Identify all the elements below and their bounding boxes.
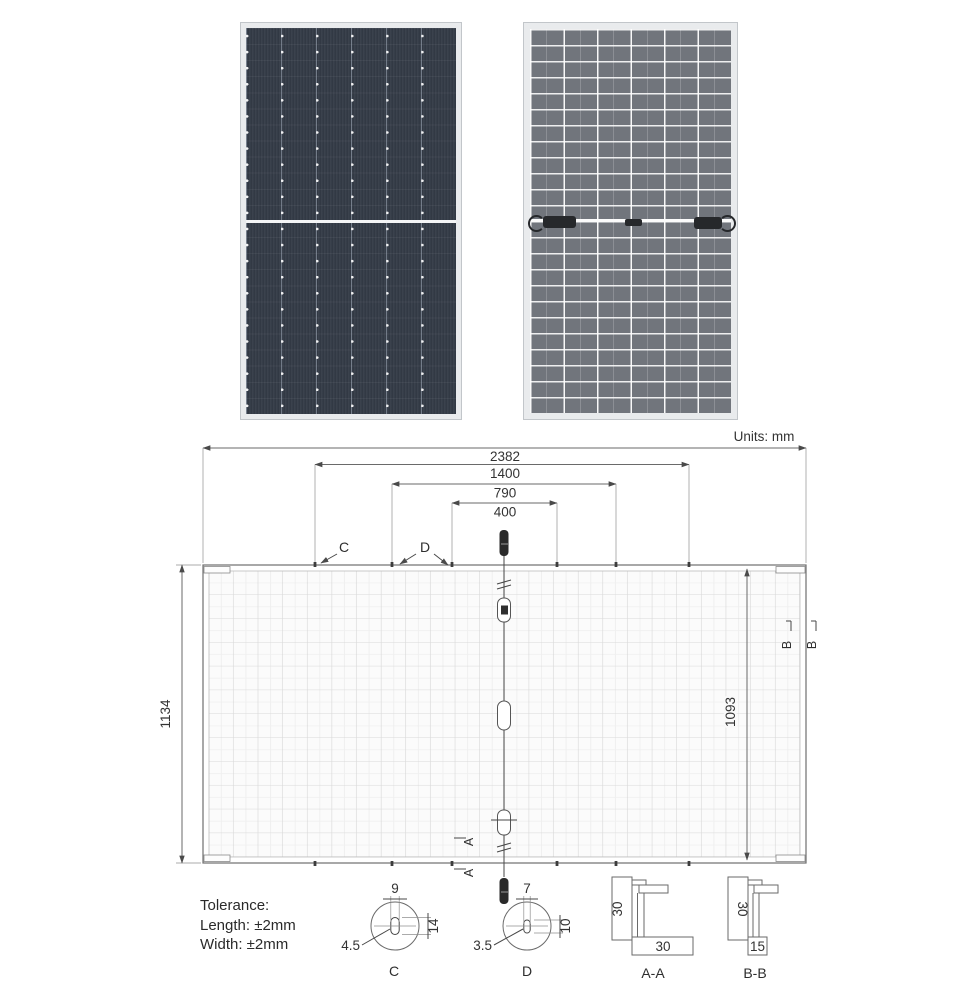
- detail-c-top-dim: 9: [391, 881, 399, 896]
- junction-box-symbol-bottom: [498, 810, 511, 835]
- section-aa-profile: 30 30 A-A: [610, 877, 693, 981]
- dim-mount-d-outer: 790: [494, 486, 517, 501]
- section-mark-a: A: [462, 868, 476, 877]
- dim-mount-c: 1400: [490, 466, 520, 481]
- dim-inner-height: 1093: [723, 697, 738, 727]
- solar-module-datasheet: Units: mm 2382 1400 790 400: [0, 0, 964, 1000]
- section-mark-b: B: [805, 641, 819, 649]
- connector-bottom: [500, 878, 509, 904]
- corner-key-top-left: [204, 567, 230, 574]
- section-bb-width: 15: [750, 939, 765, 954]
- detail-c: 9 14 4.5 C: [341, 881, 441, 979]
- corner-key-top-right: [776, 567, 805, 574]
- detail-d-top-dim: 7: [523, 881, 531, 896]
- hole-callouts: C D: [321, 539, 448, 565]
- section-mark-a: A: [462, 837, 476, 846]
- section-bb-label: B-B: [743, 965, 766, 981]
- detail-c-radius: 4.5: [341, 938, 360, 953]
- connector-top: [500, 530, 509, 556]
- callout-c: C: [339, 539, 349, 555]
- tolerance-length: Length: ±2mm: [200, 916, 296, 936]
- section-bb-height: 30: [735, 901, 750, 916]
- section-mark-b: B: [780, 641, 794, 649]
- detail-d-radius: 3.5: [473, 938, 492, 953]
- section-aa-width: 30: [655, 939, 670, 954]
- units-label: Units: mm: [734, 429, 795, 444]
- tolerance-note: Tolerance: Length: ±2mm Width: ±2mm: [200, 896, 296, 955]
- dim-overall-width: 2382: [490, 449, 520, 464]
- corner-key-bottom-right: [776, 855, 805, 862]
- tolerance-width: Width: ±2mm: [200, 935, 296, 955]
- dimension-drawing: Units: mm 2382 1400 790 400: [0, 0, 964, 1000]
- callout-d: D: [420, 539, 430, 555]
- section-bb-profile: 30 15 B-B: [728, 877, 778, 981]
- section-aa-height: 30: [610, 901, 625, 916]
- dim-overall-height: 1134: [158, 699, 173, 729]
- detail-d-label: D: [522, 963, 532, 979]
- junction-box-symbol-middle: [498, 701, 511, 730]
- dim-mount-d-inner: 400: [494, 505, 517, 520]
- tolerance-title: Tolerance:: [200, 896, 296, 916]
- detail-d: 7 10 3.5 D: [473, 881, 573, 979]
- detail-c-label: C: [389, 963, 399, 979]
- detail-d-side-dim: 10: [558, 918, 573, 933]
- section-aa-label: A-A: [641, 965, 665, 981]
- corner-key-bottom-left: [204, 855, 230, 862]
- detail-c-side-dim: 14: [426, 918, 441, 934]
